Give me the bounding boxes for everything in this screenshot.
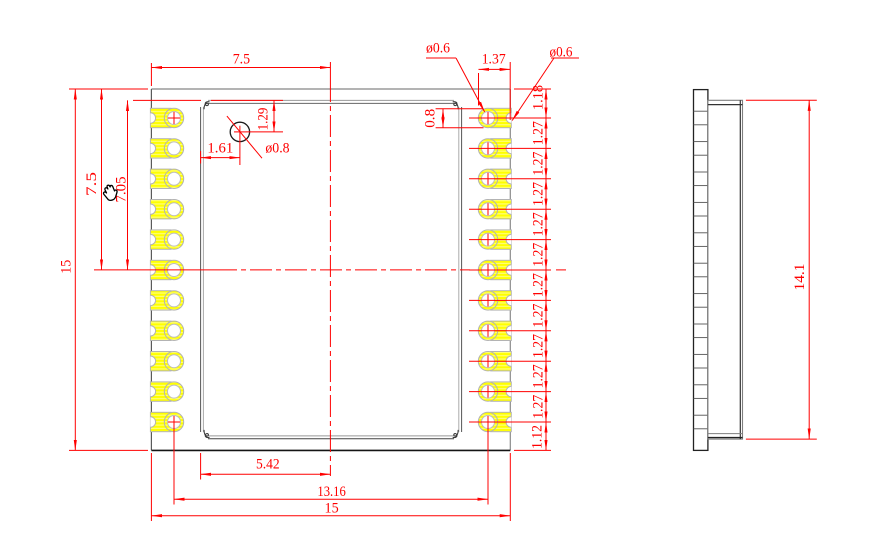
svg-text:7.5: 7.5: [84, 172, 100, 196]
svg-text:1.12: 1.12: [530, 425, 546, 449]
svg-text:1.61: 1.61: [207, 141, 233, 157]
svg-text:1.27: 1.27: [531, 182, 547, 206]
svg-text:1.29: 1.29: [256, 108, 272, 131]
svg-text:1.27: 1.27: [531, 242, 547, 266]
svg-text:5.42: 5.42: [256, 457, 280, 473]
svg-text:1.27: 1.27: [531, 212, 547, 236]
svg-text:15: 15: [59, 260, 75, 274]
svg-text:15: 15: [325, 501, 339, 517]
svg-text:ø0.6: ø0.6: [426, 41, 450, 57]
svg-text:0.8: 0.8: [423, 109, 439, 128]
svg-text:ø0.6: ø0.6: [550, 45, 573, 61]
svg-text:7.5: 7.5: [233, 52, 250, 68]
svg-text:14.1: 14.1: [792, 264, 808, 291]
svg-text:1.27: 1.27: [531, 151, 547, 175]
svg-text:1.27: 1.27: [531, 334, 547, 358]
svg-text:1.27: 1.27: [531, 121, 547, 145]
svg-text:1.37: 1.37: [482, 52, 506, 68]
svg-text:ø0.8: ø0.8: [265, 141, 289, 157]
svg-text:1.27: 1.27: [531, 273, 547, 297]
svg-text:1.27: 1.27: [531, 303, 547, 327]
svg-text:13.16: 13.16: [317, 484, 346, 500]
svg-text:1.18: 1.18: [531, 85, 547, 110]
svg-text:1.27: 1.27: [531, 364, 547, 388]
svg-text:1.27: 1.27: [531, 394, 547, 418]
